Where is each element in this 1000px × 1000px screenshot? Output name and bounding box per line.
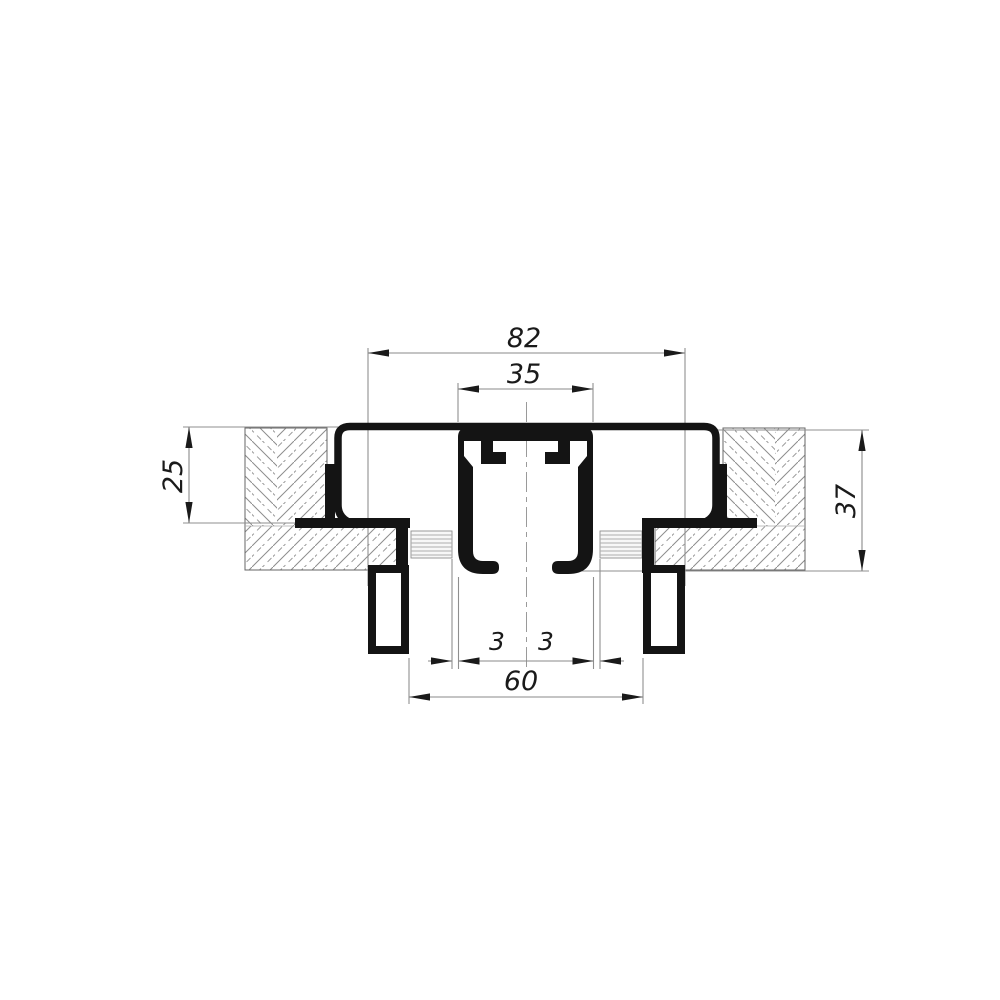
wall-left xyxy=(245,428,398,570)
wall-left-upper-hatch-a xyxy=(245,428,277,526)
wall-right-lower-hatch xyxy=(655,526,805,570)
wall-right xyxy=(655,428,805,570)
seal-strip-left xyxy=(411,531,452,558)
trim-bar-left xyxy=(295,518,410,528)
dim-gap-left-label: 3 xyxy=(489,627,505,656)
track-hook-right xyxy=(545,441,570,464)
dim-gap-right-label: 3 xyxy=(538,627,554,656)
track-hook-left xyxy=(481,441,506,464)
dim-overall-width-label: 82 xyxy=(507,323,541,354)
technical-drawing: 82 35 25 37 3 3 60 xyxy=(0,0,1000,1000)
dim-track-width-label: 35 xyxy=(507,359,541,390)
wall-left-lower-hatch xyxy=(245,526,398,570)
wall-left-upper-hatch-b xyxy=(277,428,327,526)
fixing-clip-right xyxy=(716,464,727,520)
wall-right-upper-hatch-b xyxy=(775,428,805,526)
dim-left-depth-label: 25 xyxy=(158,459,189,493)
track-rail xyxy=(458,428,593,574)
seal-strip-right xyxy=(600,531,642,558)
drawing-canvas: 82 35 25 37 3 3 60 xyxy=(0,0,1000,1000)
dim-right-depth-label: 37 xyxy=(831,484,862,518)
dim-opening-width-label: 60 xyxy=(504,666,538,697)
jamb-left xyxy=(372,569,405,650)
wall-right-upper-hatch-a xyxy=(723,428,775,526)
bracket-left xyxy=(396,528,408,570)
trim-bar-right xyxy=(642,518,757,528)
fixing-clip-left xyxy=(325,464,335,520)
jamb-right xyxy=(647,569,681,650)
